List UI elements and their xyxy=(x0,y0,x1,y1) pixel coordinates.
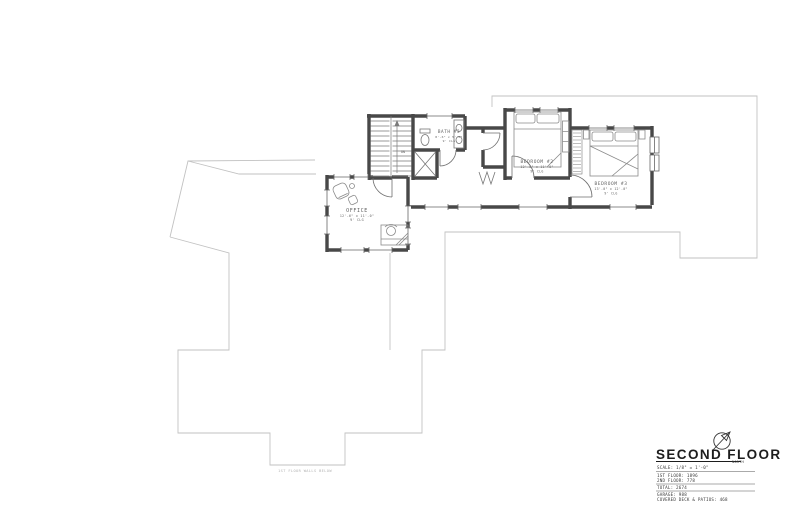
bedroom2-ceiling: 9' CLG xyxy=(530,170,543,174)
wall-hall-closet xyxy=(483,128,505,167)
office-ceiling: 9' CLG xyxy=(350,218,364,222)
bed2-pillow-1 xyxy=(516,114,535,123)
stat-total: TOTAL: 2674 xyxy=(657,485,687,490)
bed2-dresser-drawers xyxy=(563,132,570,142)
sheet-title: SECOND FLOOR xyxy=(656,447,782,462)
window-wing-south-1 xyxy=(519,204,547,210)
below-outline-left-wedge xyxy=(170,160,316,237)
office-side-table xyxy=(350,184,355,189)
linen-closet-shelving-x xyxy=(415,152,437,177)
office-ottoman xyxy=(348,195,359,206)
bed3-nightstand-left xyxy=(584,130,590,139)
bed3-blanket-lines xyxy=(590,146,638,176)
stair-down-label: DN xyxy=(401,150,405,154)
window-office-south-2 xyxy=(369,247,392,253)
bedroom3-dims: 13'-0" x 12'-0" xyxy=(594,187,627,191)
window-hall-south-1 xyxy=(425,204,448,210)
bed3-pillow-2 xyxy=(615,132,636,141)
walls-below-note: 1ST FLOOR WALLS BELOW xyxy=(278,469,332,473)
door-bath3 xyxy=(440,150,456,166)
staircase xyxy=(371,116,412,178)
window-wing-south-2 xyxy=(610,204,636,210)
bedroom3-furniture xyxy=(584,130,646,176)
office-armchair xyxy=(332,182,351,201)
floor-plan-drawing: 1ST FLOOR WALLS BELOW xyxy=(0,0,800,517)
window-bedroom3-east-bay-2 xyxy=(650,155,659,171)
door-hall-closet xyxy=(483,133,500,150)
bath3-ceiling: 9' CLG xyxy=(443,139,456,143)
window-office-west-2 xyxy=(324,216,330,234)
window-office-south-1 xyxy=(341,247,364,253)
door-bedroom3 xyxy=(570,175,592,197)
office-desk-chair xyxy=(387,227,396,236)
window-office-east-1 xyxy=(405,206,411,222)
window-bath-north xyxy=(427,113,452,119)
toilet-bowl xyxy=(421,135,429,146)
bed3 xyxy=(590,130,638,176)
toilet-tank xyxy=(420,129,430,133)
bedroom3-ceiling: 9' CLG xyxy=(604,192,617,196)
window-office-north-2 xyxy=(354,174,368,180)
bedroom2-dims: 12'-0" x 11'-0" xyxy=(520,165,553,169)
hall-railing-zigzag xyxy=(479,172,495,184)
scale-note: SCALE: 1/8" = 1'-0" xyxy=(657,465,709,470)
north-label: NORTH xyxy=(732,460,744,464)
window-office-north-1 xyxy=(334,174,350,180)
door-office xyxy=(373,178,392,197)
stat-covered-deck: COVERED DECK & PATIOS: 468 xyxy=(657,497,728,502)
bed2-dresser xyxy=(563,121,570,152)
wall-bedroom2 xyxy=(505,108,570,209)
title-block: SECOND FLOOR SCALE: 1/8" = 1'-0" 1ST FLO… xyxy=(656,432,782,502)
stat-second-floor: 2ND FLOOR: 778 xyxy=(657,478,695,483)
window-bedroom3-east-bay-1 xyxy=(650,137,659,153)
wardrobe-hanger-hatch xyxy=(573,133,581,172)
floor-plan-sheet: 1ST FLOOR WALLS BELOW xyxy=(0,0,800,517)
bed3-pillow-1 xyxy=(592,132,613,141)
window-office-west-1 xyxy=(324,190,330,206)
bed3-nightstand-right xyxy=(639,130,645,139)
window-hall-south-2 xyxy=(458,204,481,210)
bed2 xyxy=(514,112,561,167)
office-armchair-back xyxy=(339,193,348,197)
bed2-pillow-2 xyxy=(537,114,559,123)
office-desk-lines xyxy=(381,233,408,245)
wardrobe-closet xyxy=(572,130,582,174)
